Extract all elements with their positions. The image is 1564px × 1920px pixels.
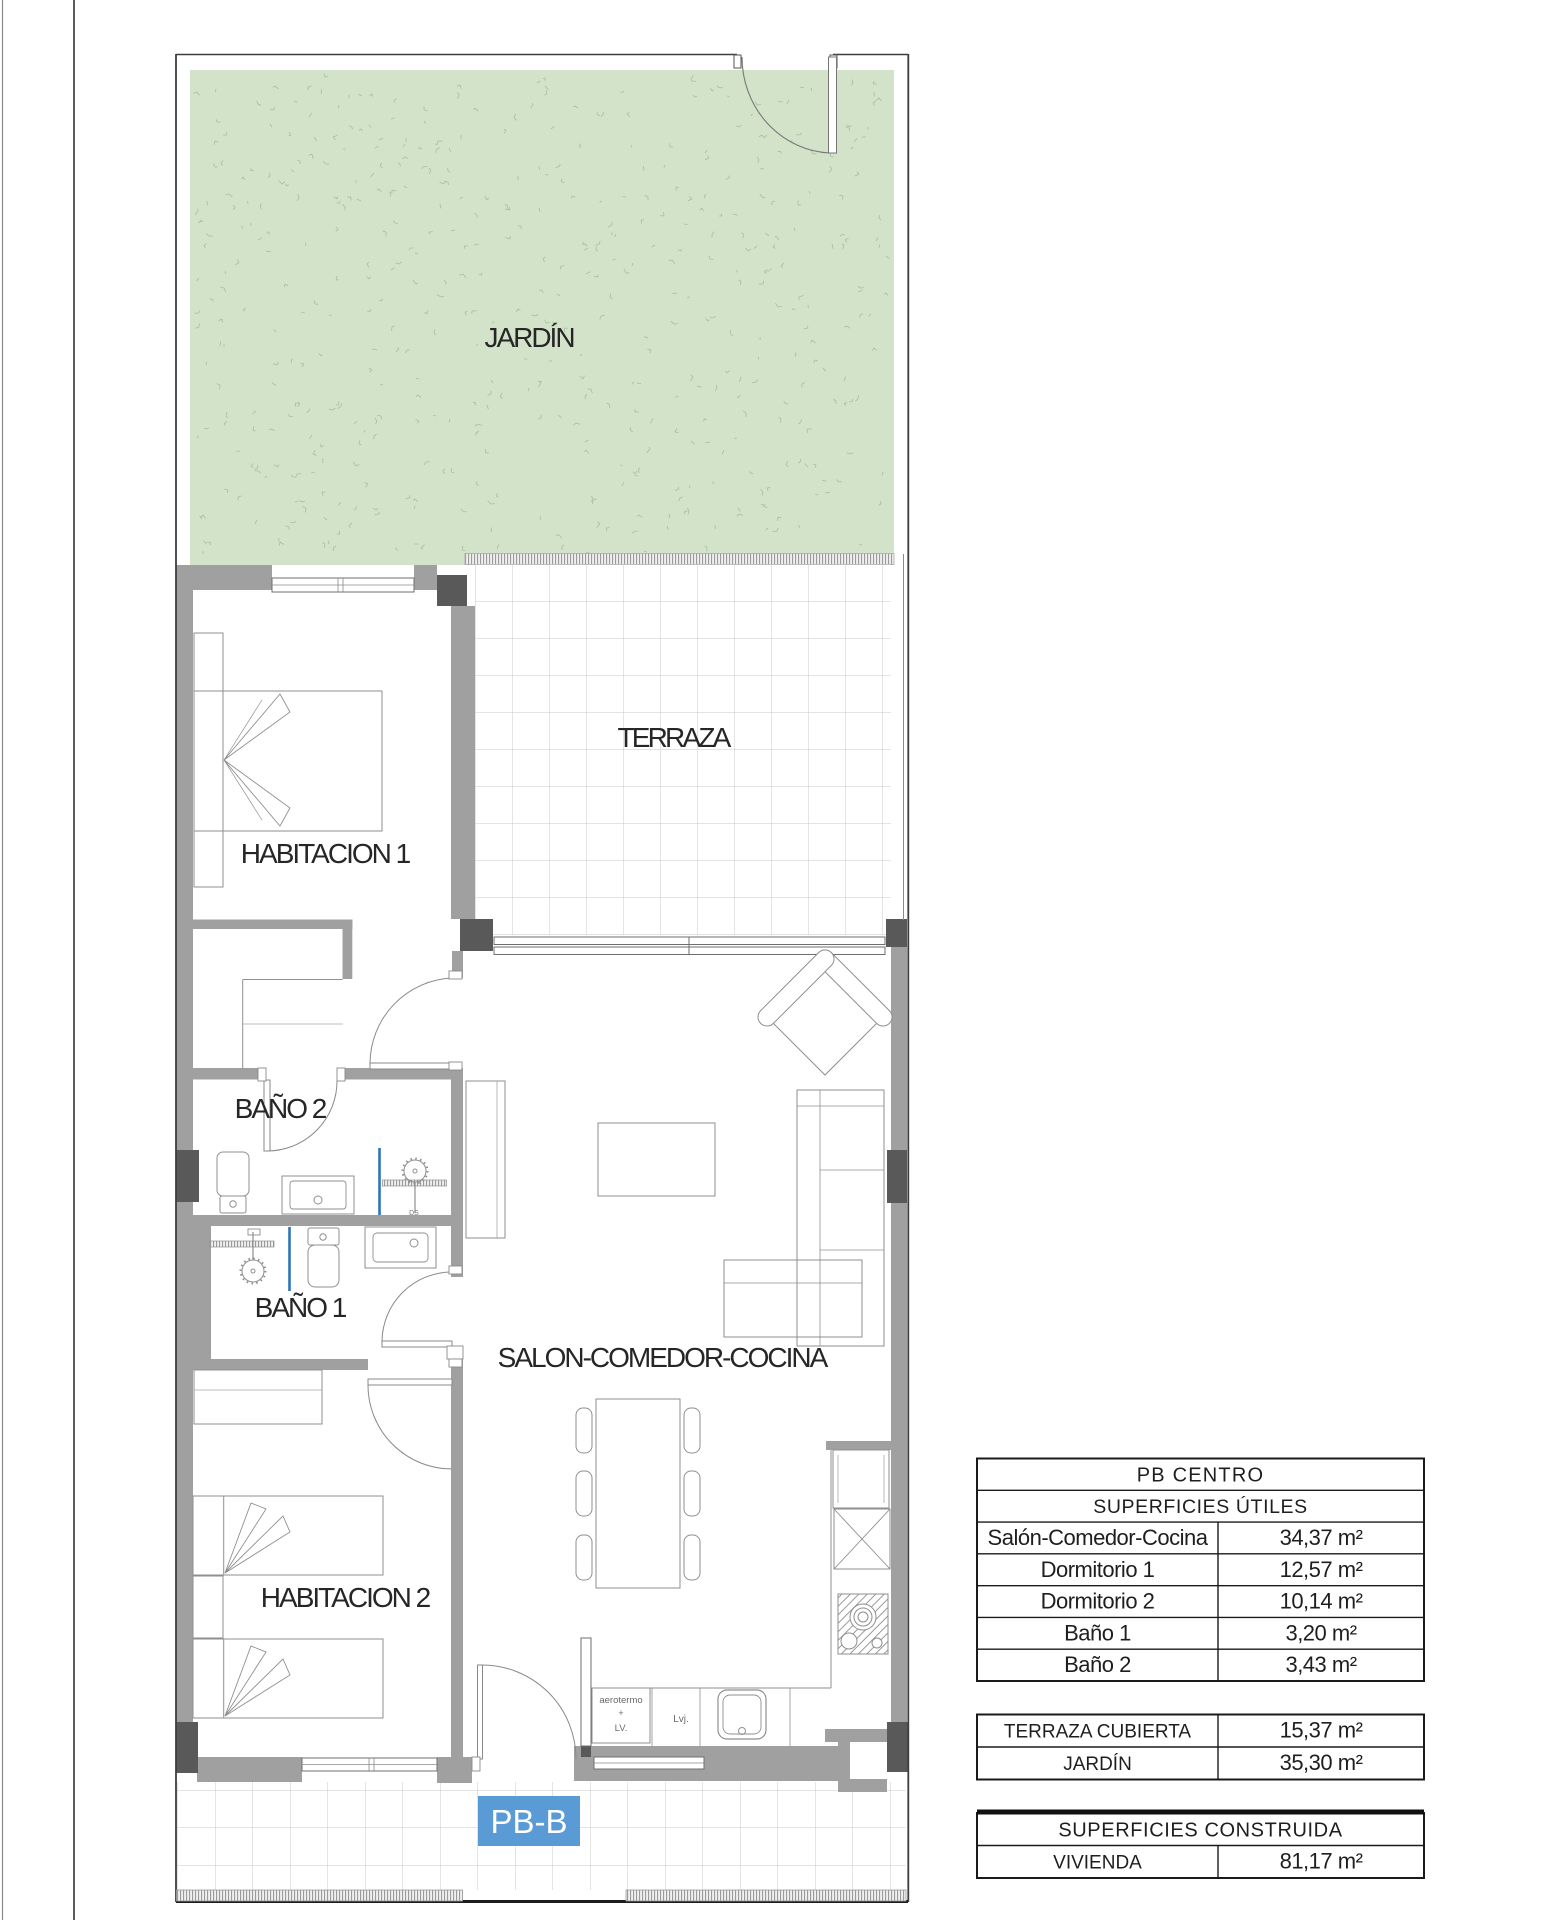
svg-text:Lvj.: Lvj. <box>673 1714 689 1725</box>
svg-text:Dormitorio 1: Dormitorio 1 <box>1041 1557 1155 1582</box>
svg-text:+: + <box>618 1708 623 1718</box>
svg-text:12,57 m²: 12,57 m² <box>1280 1557 1363 1582</box>
svg-text:SALON-COMEDOR-COCINA: SALON-COMEDOR-COCINA <box>498 1342 829 1373</box>
svg-text:PB-B: PB-B <box>490 1803 567 1840</box>
svg-text:3,43 m²: 3,43 m² <box>1285 1652 1356 1677</box>
svg-text:LV.: LV. <box>615 1723 628 1734</box>
svg-text:TERRAZA CUBIERTA: TERRAZA CUBIERTA <box>1004 1721 1192 1742</box>
svg-text:10,14 m²: 10,14 m² <box>1280 1589 1363 1614</box>
svg-text:15,37 m²: 15,37 m² <box>1280 1717 1363 1742</box>
svg-text:3,20 m²: 3,20 m² <box>1285 1620 1356 1645</box>
svg-text:Salón-Comedor-Cocina: Salón-Comedor-Cocina <box>988 1525 1209 1550</box>
svg-text:JARDÍN: JARDÍN <box>1063 1754 1132 1775</box>
svg-text:81,17 m²: 81,17 m² <box>1280 1848 1363 1873</box>
svg-text:TERRAZA: TERRAZA <box>617 722 731 753</box>
svg-text:HABITACION 2: HABITACION 2 <box>261 1582 431 1613</box>
svg-text:VIVIENDA: VIVIENDA <box>1053 1852 1142 1873</box>
svg-text:BAÑO 2: BAÑO 2 <box>235 1093 327 1124</box>
svg-text:Dormitorio 2: Dormitorio 2 <box>1041 1589 1155 1614</box>
svg-text:Baño 2: Baño 2 <box>1064 1652 1131 1677</box>
svg-text:34,37 m²: 34,37 m² <box>1280 1525 1363 1550</box>
svg-text:HABITACION 1: HABITACION 1 <box>241 838 411 869</box>
svg-text:35,30 m²: 35,30 m² <box>1280 1750 1363 1775</box>
svg-text:Baño 1: Baño 1 <box>1064 1620 1131 1645</box>
svg-text:BAÑO 1: BAÑO 1 <box>255 1292 347 1323</box>
svg-text:DS: DS <box>409 1210 419 1217</box>
svg-text:SUPERFICIES CONSTRUIDA: SUPERFICIES CONSTRUIDA <box>1058 1819 1342 1841</box>
svg-text:PB CENTRO: PB CENTRO <box>1137 1464 1264 1486</box>
svg-text:JARDÍN: JARDÍN <box>484 322 573 353</box>
svg-text:SUPERFICIES ÚTILES: SUPERFICIES ÚTILES <box>1093 1495 1308 1518</box>
svg-text:aerotermo: aerotermo <box>599 1695 642 1706</box>
